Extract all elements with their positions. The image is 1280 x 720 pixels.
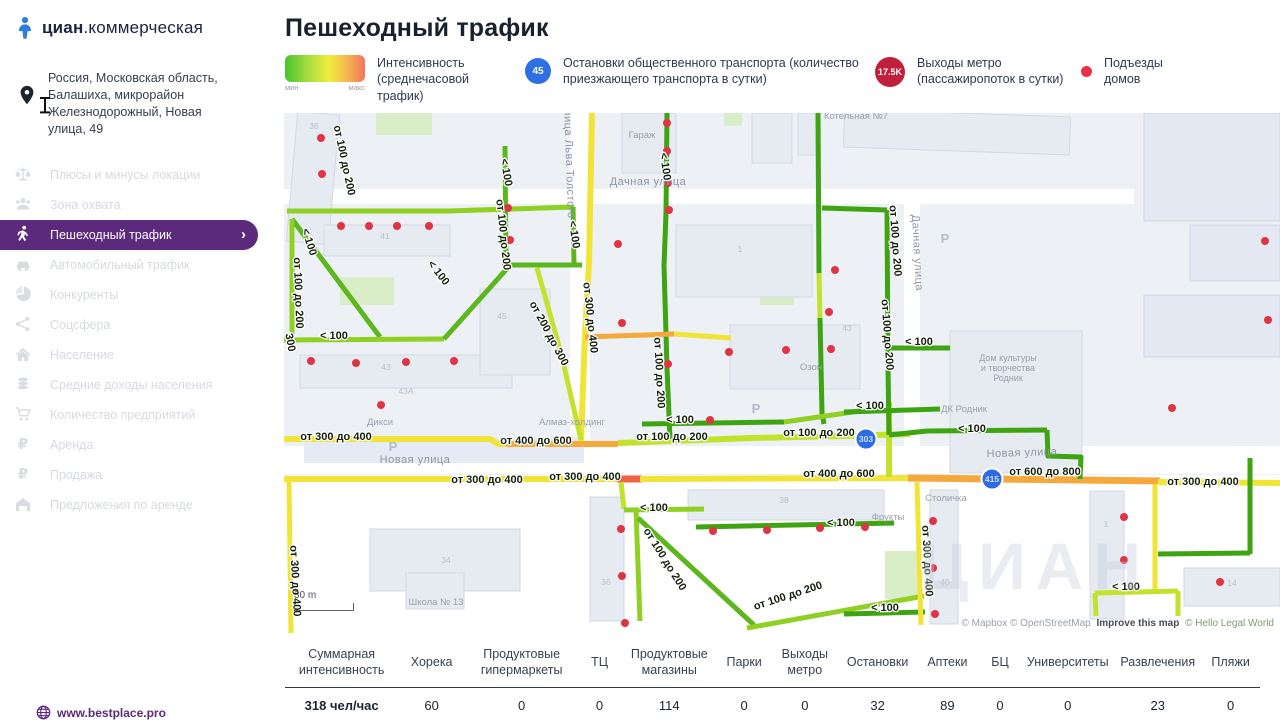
sidebar-item-label: Плюсы и минусы локации (50, 168, 200, 182)
sidebar-item-rent-offers[interactable]: Предложения по аренде (0, 490, 272, 520)
sidebar-item-social[interactable]: Соцсфера (0, 310, 272, 340)
table-value-cell: 0 (770, 688, 839, 720)
building-number: 43А (398, 386, 413, 396)
entrance-dot (317, 134, 325, 142)
traffic-line (908, 478, 1160, 481)
traffic-intensity-label: от 100 до 200 (783, 427, 854, 439)
poi-label: и творчества (981, 363, 1035, 373)
entrance-dot (1168, 404, 1176, 412)
parking-label: Р (941, 231, 950, 246)
transit-stop-number: 415 (985, 474, 999, 484)
entrance-dot (782, 346, 790, 354)
brand-person-icon (14, 16, 36, 40)
scales-icon (14, 165, 34, 185)
building (752, 113, 792, 163)
entrance-dot (816, 524, 824, 532)
sidebar-item-rent[interactable]: ₽Аренда (0, 430, 272, 460)
sidebar-item-enterprises[interactable]: Количество предприятий (0, 400, 272, 430)
brand-name: циан.коммерческая (42, 18, 203, 38)
legend-bus-stops-label: Остановки общественного транспорта (коли… (563, 55, 863, 88)
entrance-dot (377, 401, 385, 409)
traffic-intensity-label: от 300 до 400 (300, 431, 371, 443)
legend-entrances-label: Подъезды домов (1104, 55, 1184, 88)
building-number: 40 (940, 577, 950, 587)
poi-label: Родник (993, 373, 1023, 383)
legend-intensity: мин макс Интенсивность (среднечасовой тр… (285, 55, 499, 104)
table-value-cell: 23 (1114, 688, 1201, 720)
scale-bar-label: 30 m (294, 590, 316, 601)
building (590, 497, 624, 621)
sidebar-item-label: Зона охвата (50, 198, 121, 212)
park-area (724, 113, 742, 126)
entrance-dot (337, 222, 345, 230)
rent-icon: ₽ (14, 435, 34, 455)
table-header-cell: Выходы метро (770, 643, 839, 688)
entrance-dot (393, 222, 401, 230)
legend-intensity-label: Интенсивность (среднечасовой трафик) (377, 55, 499, 104)
legend-bus-stops: 45 Остановки общественного транспорта (к… (525, 55, 863, 88)
table-value-cell: 0 (718, 688, 771, 720)
traffic-line (818, 113, 819, 273)
brand-logo[interactable]: циан.коммерческая (0, 0, 272, 40)
poi-label: Гараж (629, 130, 656, 141)
sidebar-item-label: Население (50, 348, 114, 362)
sidebar-item-label: Конкуренты (50, 288, 118, 302)
pedestrian-icon (14, 225, 34, 245)
attribution-improve-link[interactable]: Improve this map (1097, 618, 1180, 629)
building-number: 43 (842, 323, 852, 333)
poi-label: Школа № 13 (409, 597, 464, 608)
traffic-intensity-label: < 100 (640, 502, 668, 514)
entrance-dot (1261, 237, 1269, 245)
svg-text:₽: ₽ (18, 436, 28, 453)
entrance-dot (831, 266, 839, 274)
sidebar-item-label: Автомобильный трафик (50, 258, 189, 272)
traffic-intensity-label: от 100 до 200 (291, 257, 305, 329)
address-text: Россия, Московская область, Балашиха, ми… (48, 70, 238, 138)
attribution-base: © Mapbox © OpenStreetMap (961, 618, 1090, 629)
sidebar-item-coverage[interactable]: Зона охвата (0, 190, 272, 220)
poi-label: Дом культуры (979, 353, 1037, 363)
building-number: 14 (1227, 578, 1237, 588)
park-area (376, 113, 432, 135)
table-value-cell: 318 чел/час (285, 688, 398, 720)
traffic-intensity-label: от 600 до 800 (1009, 466, 1080, 478)
legend-entrances: Подъезды домов (1081, 55, 1184, 88)
entrance-dot (1264, 316, 1272, 324)
table-value-cell: 0 (1201, 688, 1260, 720)
entrance-dot (618, 572, 626, 580)
traffic-intensity-label: < 100 (856, 400, 884, 412)
table-header-cell: Университеты (1021, 643, 1114, 688)
entrance-dot (425, 222, 433, 230)
building (1190, 225, 1280, 281)
competitors-icon (14, 285, 34, 305)
gradient-max-label: макс (349, 83, 365, 92)
map-canvas[interactable]: Дачная улицаДачная улицаулица Льва Толст… (284, 113, 1280, 633)
building (798, 113, 818, 155)
sidebar-item-competitors[interactable]: Конкуренты (0, 280, 272, 310)
table-header-cell: Суммарная интенсивность (285, 643, 398, 688)
footer-link-text: www.bestplace.pro (57, 706, 166, 720)
sidebar-item-pedestrian[interactable]: Пешеходный трафик› (0, 220, 258, 250)
entrance-dot (827, 345, 835, 353)
table-header-cell: ТЦ (578, 643, 620, 688)
entrance-dot (402, 358, 410, 366)
traffic-intensity-label: от 300 до 400 (451, 474, 522, 486)
table-value-cell: 0 (979, 688, 1021, 720)
traffic-intensity-label: от 300 до 400 (549, 471, 620, 483)
sidebar-menu: Плюсы и минусы локацииЗона охватаПешеход… (0, 160, 272, 520)
traffic-intensity-label: < 100 (1112, 581, 1140, 593)
table-header-cell: Продуктовые гипермаркеты (465, 643, 578, 688)
table-value-cell: 114 (621, 688, 718, 720)
road (284, 189, 1134, 204)
summary-table: Суммарная интенсивностьХорекаПродуктовые… (285, 643, 1260, 719)
sidebar-item-label: Аренда (50, 438, 93, 452)
table-value-cell: 32 (839, 688, 916, 720)
entrance-dot (663, 119, 671, 127)
building-number: 45 (497, 311, 507, 321)
map-attribution: © Mapbox © OpenStreetMap Improve this ma… (961, 618, 1274, 629)
chevron-right-icon: › (241, 226, 246, 243)
entrance-dot (617, 525, 625, 533)
street-label: Новая улица (986, 446, 1057, 460)
traffic-intensity-label: от 100 до 200 (636, 431, 707, 443)
sidebar-item-label: Пешеходный трафик (50, 228, 171, 242)
traffic-intensity-label: 300 (284, 332, 297, 352)
entrance-dot (725, 348, 733, 356)
population-icon (14, 345, 34, 365)
building-number: 1 (1104, 519, 1109, 529)
footer-link[interactable]: www.bestplace.pro (36, 705, 166, 720)
sidebar-item-car[interactable]: Автомобильный трафик (0, 250, 272, 280)
traffic-line (284, 339, 444, 340)
entrance-dot (318, 170, 326, 178)
building-number: 34 (441, 555, 451, 565)
location-pin-icon (16, 84, 38, 106)
poi-label: Озон (800, 362, 822, 373)
globe-icon (36, 705, 51, 720)
poi-label: Фрукты (872, 512, 905, 523)
legend-metro: 17.5K Выходы метро (пассажиропоток в сут… (875, 55, 1067, 88)
poi-label: Дикси (367, 417, 393, 428)
poi-label: ДК Родник (941, 404, 988, 415)
legend-metro-label: Выходы метро (пассажиропоток в сутки) (917, 55, 1067, 88)
attribution-extra: © Hello Legal World (1185, 618, 1274, 629)
entrance-dot (709, 527, 717, 535)
table-value-cell: 0 (578, 688, 620, 720)
gradient-min-label: мин (285, 83, 299, 92)
entrance-dot (450, 357, 458, 365)
building-number: 41 (380, 231, 390, 241)
poi-label: Столичка (925, 493, 967, 504)
building (930, 490, 958, 624)
sidebar-item-label: Предложения по аренде (50, 498, 193, 512)
parking-label: Р (389, 439, 398, 454)
app-root: циан.коммерческая Россия, Московская обл… (0, 0, 1280, 707)
entrance-dot (621, 619, 629, 627)
enterprises-icon (14, 405, 34, 425)
sidebar-item-label: Средние доходы населения (50, 378, 212, 392)
building-number: 36 (601, 577, 611, 587)
traffic-intensity-label: от 300 до 400 (1167, 476, 1238, 488)
building-number: 38 (779, 495, 789, 505)
table-header-cell: Остановки (839, 643, 916, 688)
entrance-dot (614, 240, 622, 248)
car-icon (14, 255, 34, 275)
stats-table: Суммарная интенсивностьХорекаПродуктовые… (285, 643, 1260, 719)
sidebar-item-sale[interactable]: ₽Продажа (0, 460, 272, 490)
scale-bar: 30 m (294, 590, 354, 611)
transit-stop-number: 303 (859, 434, 873, 444)
traffic-intensity-label: < 100 (827, 517, 855, 529)
legend: мин макс Интенсивность (среднечасовой тр… (285, 55, 1280, 107)
entrance-dot (929, 517, 937, 525)
traffic-line (927, 430, 1047, 431)
building-number: 43 (381, 362, 391, 372)
table-header-cell: Развлечения (1114, 643, 1201, 688)
social-icon (14, 315, 34, 335)
traffic-line (822, 208, 887, 210)
main-content: Пешеходный трафик мин макс Интенсивность… (272, 0, 1280, 707)
sale-icon: ₽ (14, 465, 34, 485)
sidebar: циан.коммерческая Россия, Московская обл… (0, 0, 272, 707)
table-value-cell: 60 (398, 688, 465, 720)
entrance-dot (307, 357, 315, 365)
building-number: 36 (309, 121, 319, 131)
building-number: 1 (738, 244, 743, 254)
traffic-line (1158, 553, 1250, 554)
building (676, 225, 812, 297)
entrance-dot (1120, 513, 1128, 521)
parking-label: Р (752, 401, 761, 416)
entrance-dot (1216, 578, 1224, 586)
entrance-dot (1081, 66, 1092, 77)
table-header-cell: Пляжи (1201, 643, 1260, 688)
sidebar-item-population[interactable]: Население (0, 340, 272, 370)
text-cursor (38, 97, 52, 113)
bus-stop-badge: 45 (525, 58, 551, 84)
table-header-cell: Хорека (398, 643, 465, 688)
table-value-cell: 89 (916, 688, 979, 720)
traffic-line (819, 273, 820, 318)
traffic-intensity-label: < 100 (320, 330, 348, 342)
sidebar-item-scales[interactable]: Плюсы и минусы локации (0, 160, 272, 190)
address-block: Россия, Московская область, Балашиха, ми… (0, 40, 272, 138)
entrance-dot (365, 222, 373, 230)
coverage-icon (14, 195, 34, 215)
traffic-intensity-label: < 100 (958, 423, 986, 435)
building (730, 325, 860, 389)
entrance-dot (352, 359, 360, 367)
building (1144, 295, 1280, 357)
street-label: Дачная улица (610, 176, 687, 188)
income-icon (14, 375, 34, 395)
metro-exit-badge: 17.5K (875, 57, 905, 87)
poi-label: Котельная №7 (824, 113, 888, 122)
sidebar-item-label: Соцсфера (50, 318, 110, 332)
sidebar-item-label: Количество предприятий (50, 408, 195, 422)
table-header-cell: БЦ (979, 643, 1021, 688)
entrance-dot (763, 526, 771, 534)
entrance-dot (825, 308, 833, 316)
entrance-dot (665, 206, 673, 214)
traffic-intensity-label: < 100 (905, 336, 933, 348)
table-header-cell: Продуктовые магазины (621, 643, 718, 688)
traffic-intensity-label: < 100 (871, 602, 899, 614)
traffic-intensity-label: < 100 (666, 414, 694, 426)
entrance-dot (931, 610, 939, 618)
street-label: Новая улица (380, 454, 451, 466)
rent-offers-icon (14, 495, 34, 515)
traffic-intensity-label: от 400 до 600 (500, 435, 571, 447)
poi-label: Алмаз-холдинг (539, 417, 605, 428)
traffic-line (621, 482, 624, 509)
entrance-dot (1120, 556, 1128, 564)
table-header-cell: Аптеки (916, 643, 979, 688)
entrance-dot (618, 319, 626, 327)
building (1144, 113, 1280, 221)
page-title: Пешеходный трафик (285, 14, 1280, 43)
park-area (885, 551, 921, 599)
traffic-line (1095, 593, 1096, 616)
intensity-gradient: мин макс (285, 55, 365, 92)
sidebar-item-income[interactable]: Средние доходы населения (0, 370, 272, 400)
table-value-cell: 0 (465, 688, 578, 720)
svg-text:₽: ₽ (18, 466, 28, 483)
entrance-dot (861, 523, 869, 531)
table-header-cell: Парки (718, 643, 771, 688)
traffic-intensity-label: от 400 до 600 (803, 468, 874, 480)
table-value-cell: 0 (1021, 688, 1114, 720)
sidebar-item-label: Продажа (50, 468, 102, 482)
entrance-dot (706, 416, 714, 424)
